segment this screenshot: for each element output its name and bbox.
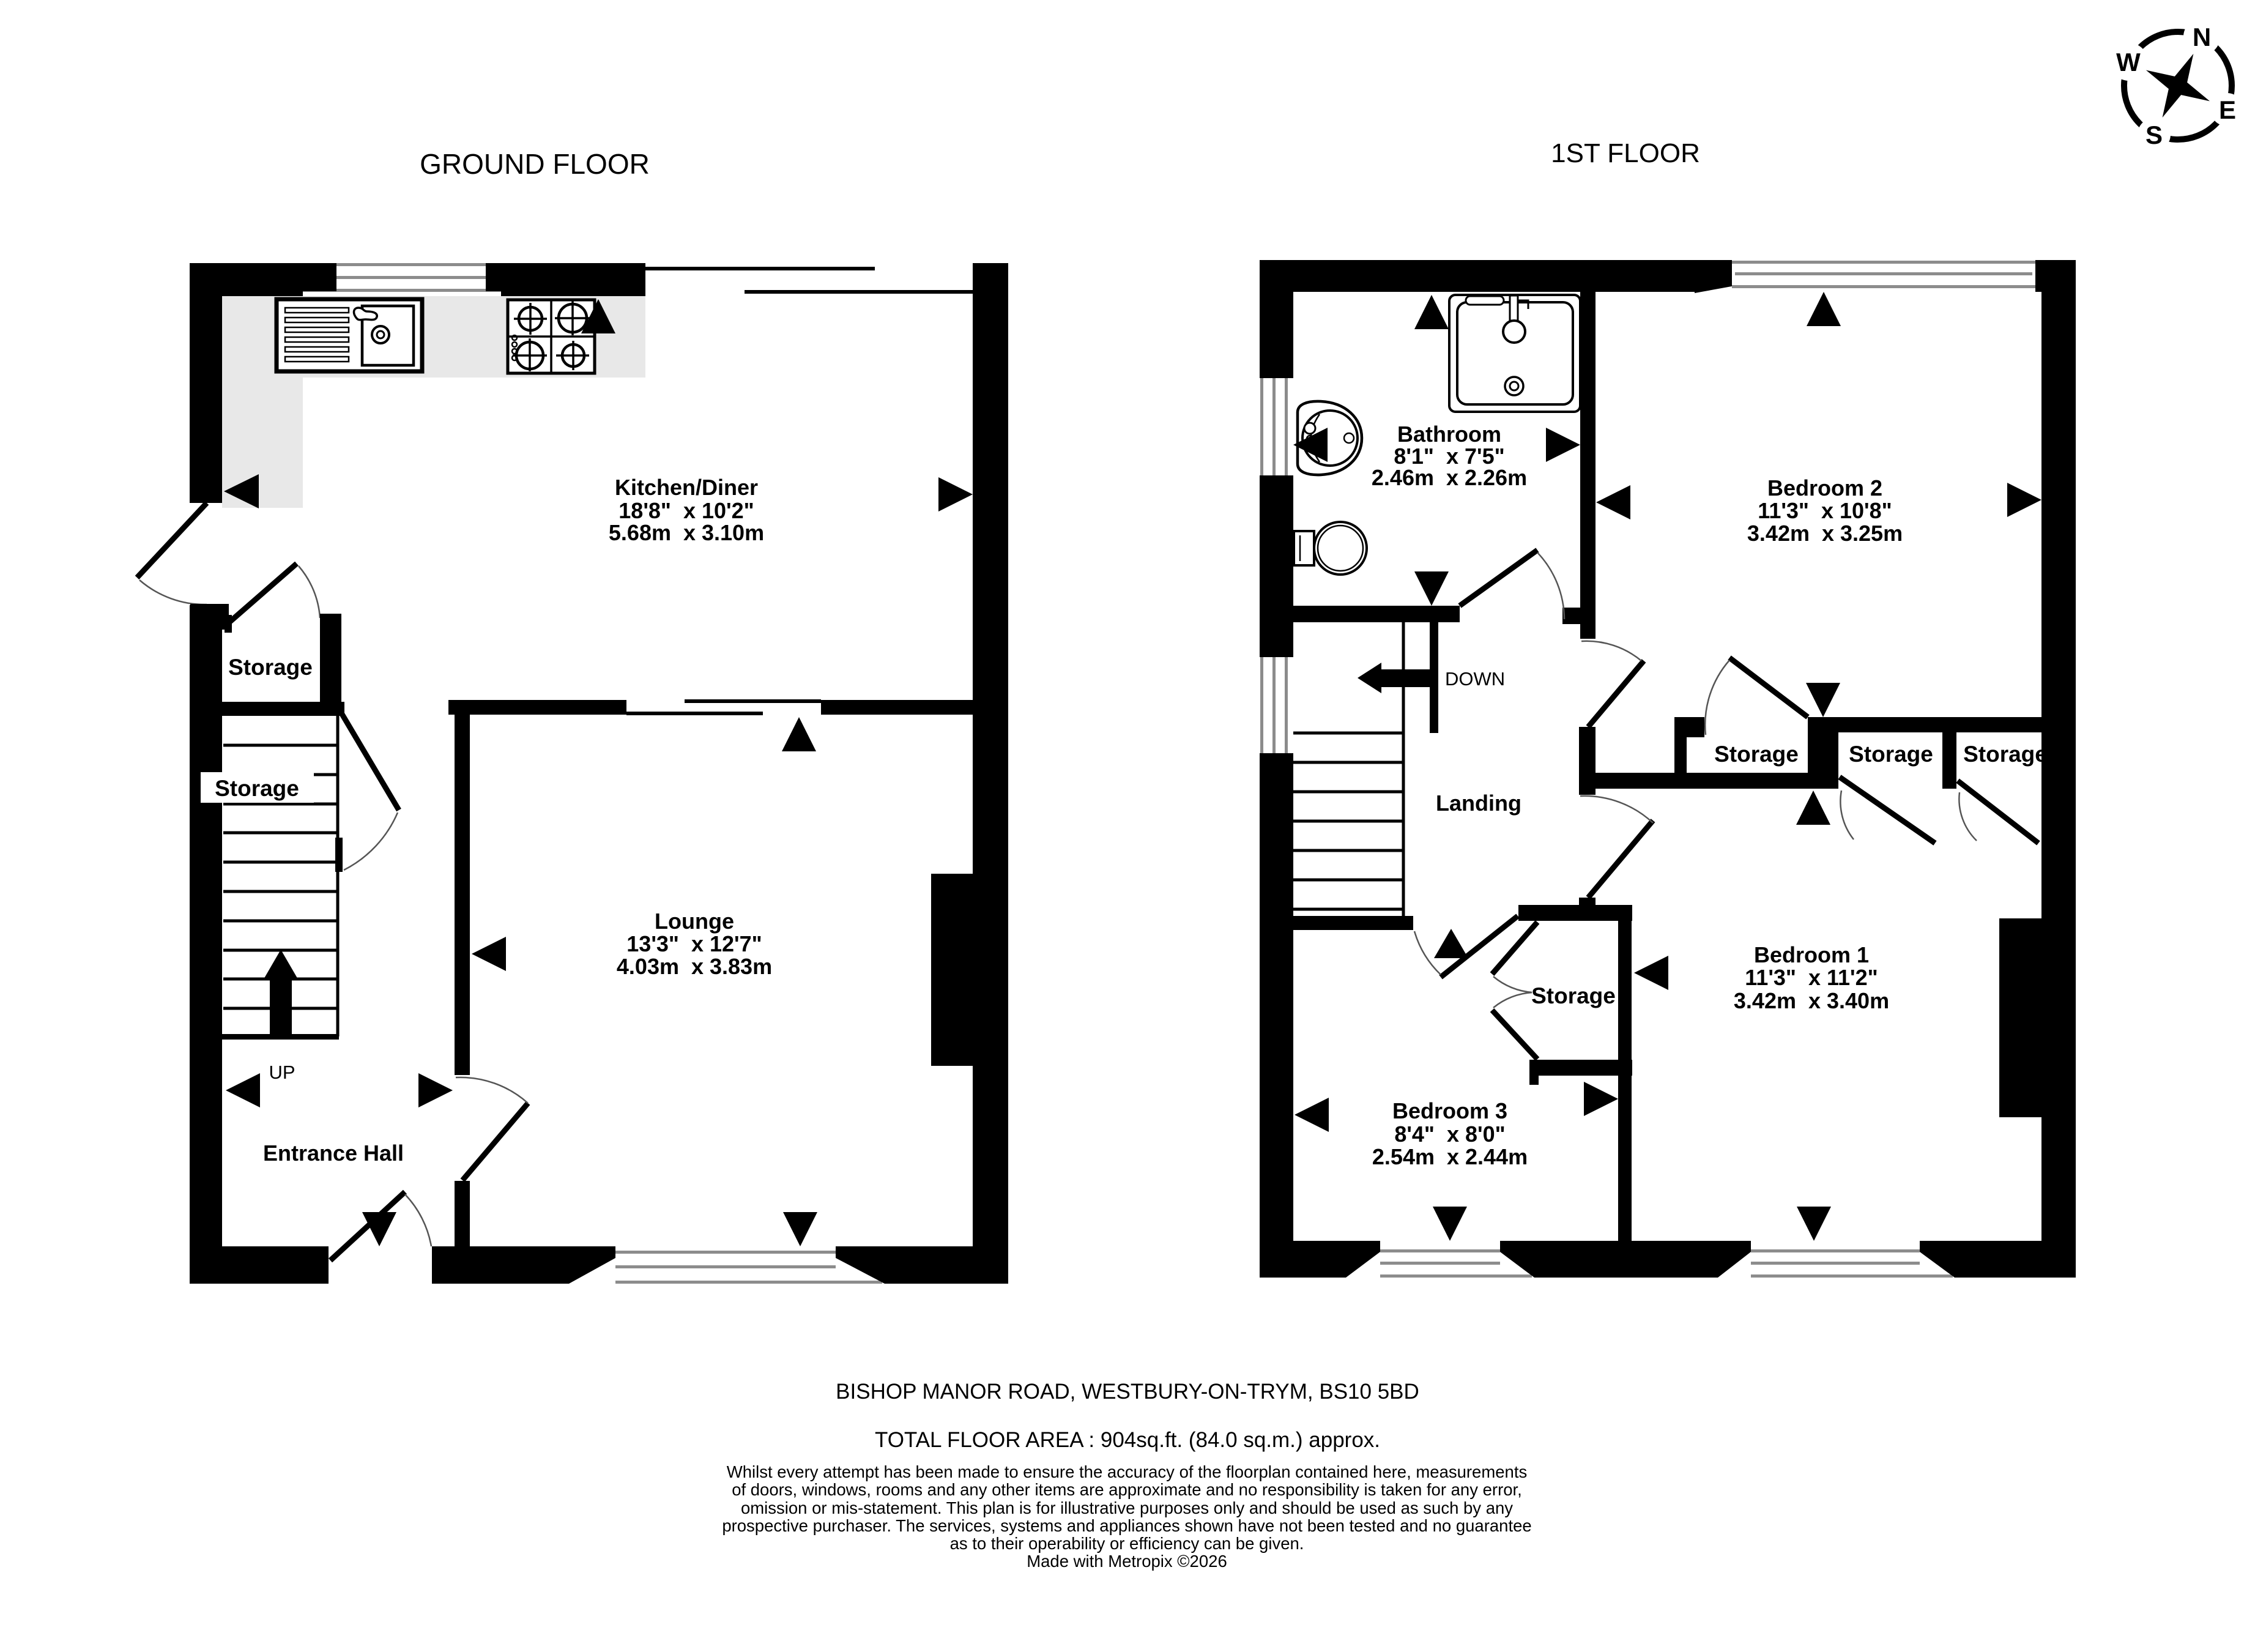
svg-text:Entrance Hall: Entrance Hall <box>263 1140 404 1166</box>
svg-text:3.42m x 3.25m: 3.42m x 3.25m <box>1747 521 1903 546</box>
svg-text:11'3" x 11'2": 11'3" x 11'2" <box>1745 965 1878 990</box>
svg-text:Landing: Landing <box>1436 791 1521 816</box>
svg-text:BISHOP MANOR ROAD, WESTBURY-ON: BISHOP MANOR ROAD, WESTBURY-ON-TRYM, BS1… <box>836 1380 1419 1404</box>
svg-text:DOWN: DOWN <box>1445 668 1505 690</box>
svg-text:W: W <box>2116 48 2141 76</box>
svg-text:13'3" x 12'7": 13'3" x 12'7" <box>626 931 762 956</box>
svg-text:8'4" x 8'0": 8'4" x 8'0" <box>1394 1122 1505 1147</box>
svg-text:18'8" x 10'2": 18'8" x 10'2" <box>619 498 754 523</box>
svg-text:as to their operability or eff: as to their operability or efficiency ca… <box>950 1534 1304 1553</box>
svg-text:E: E <box>2219 95 2236 124</box>
svg-text:2.46m x 2.26m: 2.46m x 2.26m <box>1372 465 1527 490</box>
svg-text:prospective purchaser. The ser: prospective purchaser. The services, sys… <box>722 1516 1531 1535</box>
svg-text:N: N <box>2193 23 2211 51</box>
svg-text:11'3" x 10'8": 11'3" x 10'8" <box>1758 498 1892 523</box>
svg-text:Storage: Storage <box>1531 983 1616 1008</box>
svg-text:omission or mis-statement. Thi: omission or mis-statement. This plan is … <box>741 1498 1513 1517</box>
svg-text:Made with Metropix ©2026: Made with Metropix ©2026 <box>1027 1552 1227 1571</box>
svg-text:1ST FLOOR: 1ST FLOOR <box>1551 138 1700 168</box>
svg-text:Whilst every attempt has been: Whilst every attempt has been made to en… <box>727 1462 1528 1481</box>
svg-text:of doors, windows, rooms and a: of doors, windows, rooms and any other i… <box>732 1480 1522 1499</box>
svg-text:Storage: Storage <box>1849 742 1933 767</box>
svg-text:UP: UP <box>269 1062 295 1083</box>
svg-text:GROUND FLOOR: GROUND FLOOR <box>420 148 650 180</box>
svg-text:Storage: Storage <box>1963 742 2048 767</box>
svg-text:TOTAL FLOOR AREA : 904sq.ft. (: TOTAL FLOOR AREA : 904sq.ft. (84.0 sq.m.… <box>875 1428 1380 1452</box>
svg-text:2.54m x 2.44m: 2.54m x 2.44m <box>1372 1144 1528 1169</box>
svg-text:3.42m x 3.40m: 3.42m x 3.40m <box>1734 988 1889 1013</box>
svg-text:Storage: Storage <box>228 655 313 680</box>
svg-text:Kitchen/Diner: Kitchen/Diner <box>615 475 758 500</box>
svg-text:Lounge: Lounge <box>655 909 734 934</box>
svg-text:5.68m x 3.10m: 5.68m x 3.10m <box>609 520 764 545</box>
svg-text:Storage: Storage <box>1714 742 1799 767</box>
svg-text:S: S <box>2145 121 2163 149</box>
svg-text:4.03m x 3.83m: 4.03m x 3.83m <box>617 954 772 979</box>
svg-text:Storage: Storage <box>215 776 299 801</box>
svg-text:Bathroom: Bathroom <box>1397 422 1501 447</box>
svg-text:Bedroom 3: Bedroom 3 <box>1392 1098 1507 1123</box>
svg-text:Bedroom 1: Bedroom 1 <box>1754 942 1869 967</box>
svg-text:Bedroom 2: Bedroom 2 <box>1767 475 1882 500</box>
